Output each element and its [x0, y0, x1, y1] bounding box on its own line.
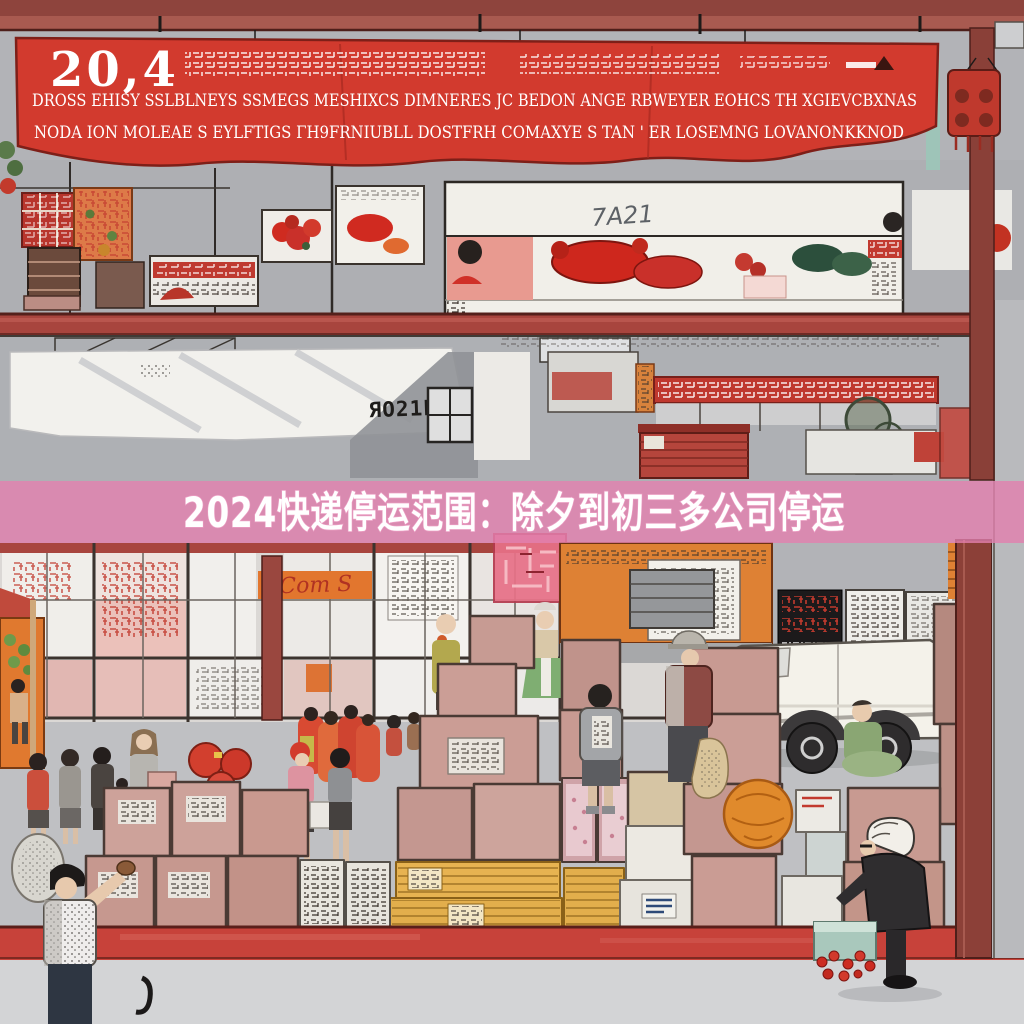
- red-banner: 20,4 DROSS EHISY SSLBLNEYS SSMEGS MESHIX…: [16, 38, 938, 166]
- long-display-counter: 7A21: [445, 182, 903, 314]
- counter-handwriting-text: 7A21: [590, 200, 654, 232]
- red-banner-sign: [654, 377, 938, 403]
- illustration-market-scene: 7A21: [0, 0, 1024, 1024]
- van-front-wheel: [787, 723, 837, 773]
- drawer-shelf: [24, 248, 80, 310]
- orange-floral-poster: [74, 188, 132, 260]
- horizontal-red-beam: [0, 313, 1024, 335]
- right-wall-flower: [912, 190, 1012, 270]
- headline-overlay: 2024快递停运范围：除夕到初三多公司停运: [0, 481, 1024, 543]
- pink-neon-sign: [494, 534, 566, 602]
- banner-line2-text: DROSS EHISY SSLBLNEYS SSMEGS MESHIXCS DI…: [32, 91, 917, 111]
- headline-title-text: 2024快递停运范围：除夕到初三多公司停运: [183, 488, 845, 537]
- storefront-red-pole: [262, 556, 282, 720]
- banner-glyph-scribble: [185, 52, 485, 76]
- red-container-kiosk: [638, 424, 750, 478]
- storefront-script-text: Com S: [279, 572, 353, 600]
- yellow-crates: [390, 862, 624, 934]
- fruit-board: [336, 186, 424, 264]
- middle-band: ЯO21P: [0, 335, 1024, 481]
- berry-stand: [262, 210, 332, 262]
- red-sign-counter: [96, 256, 258, 308]
- floral-label-boxes: [562, 778, 634, 862]
- illustration-canvas: 7A21: [0, 0, 1024, 1024]
- white-glyph-boxes: [300, 860, 390, 930]
- upper-shop-band: 7A21: [0, 160, 1024, 315]
- teal-gift-box: [814, 922, 876, 960]
- banner-line3-text: NODA ION MOLEAE S EYLFTIGS ΓH9FRNIUBLL D…: [34, 123, 904, 143]
- banner-year-text: 20,4: [50, 42, 179, 98]
- orange-lantern-ball: [724, 780, 792, 848]
- blue-label-box: [642, 894, 676, 918]
